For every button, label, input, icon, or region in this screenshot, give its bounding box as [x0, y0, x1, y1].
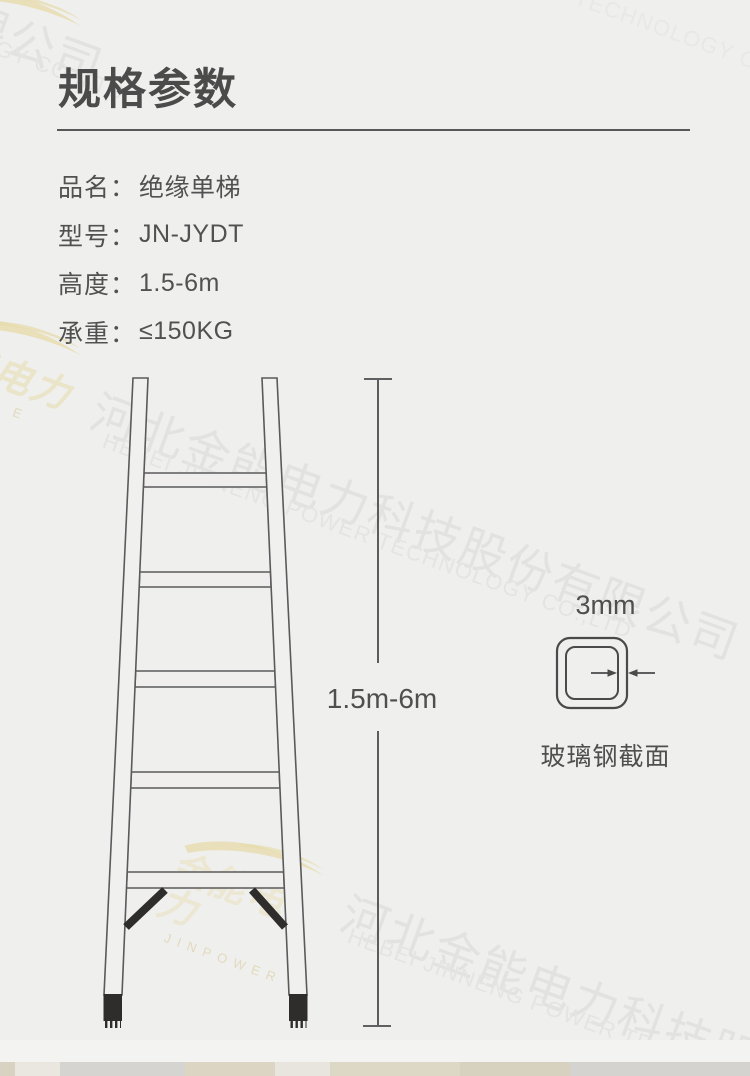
bottom-strip	[0, 1062, 750, 1076]
spec-page: 河北金能电力科技股份有限公司 HEBEI JINNENG POWER TECHN…	[0, 0, 750, 1076]
spec-value: ≤150KG	[139, 317, 234, 346]
section-bottom-fade	[0, 1040, 750, 1062]
ladder-feet	[104, 994, 308, 1021]
spec-label: 品名：	[58, 168, 136, 204]
ladder-rung	[139, 572, 271, 587]
page-title: 规格参数	[58, 55, 238, 117]
spec-label: 高度：	[58, 265, 136, 301]
ladder-rung	[131, 772, 280, 788]
content: 规格参数 品名： 绝缘单梯 型号： JN-JYDT 高度： 1.5-6m 承重：…	[0, 0, 750, 1076]
ladder-rung	[135, 671, 276, 687]
thickness-label: 3mm	[543, 590, 668, 621]
ladder-rungs	[127, 473, 285, 888]
spec-value: 绝缘单梯	[139, 168, 241, 204]
height-dimension-label: 1.5m-6m	[322, 683, 442, 715]
ladder-foot	[289, 994, 308, 1021]
spec-row: 型号： JN-JYDT	[58, 211, 244, 260]
spec-row: 品名： 绝缘单梯	[58, 162, 244, 211]
spec-label: 承重：	[58, 314, 136, 350]
ladder-brace	[126, 890, 165, 927]
cross-section-icon	[543, 630, 668, 722]
arrow-left-icon	[628, 669, 655, 676]
ladder-rung	[143, 473, 266, 487]
spec-row: 承重： ≤150KG	[58, 308, 244, 357]
spec-row: 高度： 1.5-6m	[58, 259, 244, 308]
ladder-braces	[126, 890, 285, 927]
cross-section-label: 玻璃钢截面	[533, 737, 678, 773]
ladder-rung	[127, 872, 285, 888]
spec-value: JN-JYDT	[139, 220, 244, 249]
arrow-right-icon	[591, 669, 617, 676]
spec-list: 品名： 绝缘单梯 型号： JN-JYDT 高度： 1.5-6m 承重： ≤150…	[58, 162, 244, 356]
spec-value: 1.5-6m	[139, 269, 220, 298]
ladder-brace	[252, 890, 285, 927]
spec-label: 型号：	[58, 217, 136, 253]
title-underline	[57, 129, 690, 131]
ladder-foot	[104, 994, 123, 1021]
